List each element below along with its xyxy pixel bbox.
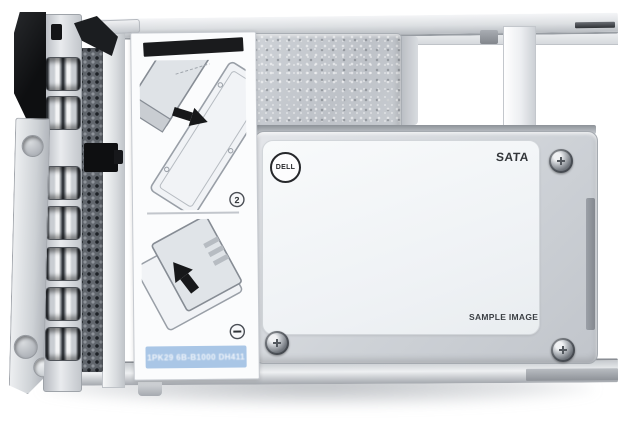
- latch-lock-tab-nub: [114, 150, 123, 164]
- spring-contact-slot: [45, 287, 81, 321]
- spring-contact-slot: [45, 327, 81, 361]
- carrier-foot: [138, 382, 162, 396]
- latch-black-wedge: [14, 12, 46, 128]
- spring-contact-slot: [45, 57, 81, 91]
- spring-contact-slot: [45, 166, 81, 200]
- spring-contact-slot: [45, 96, 81, 130]
- sata-interface-label: SATA: [496, 150, 530, 164]
- product-photo-dell-ssd-carrier: DELL SATA SAMPLE IMAGE: [0, 0, 618, 429]
- spring-contact-slot: [45, 247, 81, 281]
- part-number-text: 1PK29 6B-B1000 DH411: [147, 352, 245, 362]
- sample-image-watermark: SAMPLE IMAGE: [469, 312, 538, 322]
- screw-badge: [230, 324, 244, 338]
- bezel-side-rail: [102, 28, 125, 388]
- bracket-right-edge: [586, 198, 595, 330]
- step-badge: 2: [230, 192, 244, 206]
- bottom-rail-end-cap: [526, 368, 618, 381]
- svg-text:2: 2: [234, 195, 239, 205]
- label-divider: [147, 212, 239, 215]
- emi-perforated-strip: [79, 48, 103, 372]
- galvanized-metal-plate: [250, 33, 402, 130]
- rail-clip: [480, 30, 498, 44]
- screw-icon: [549, 149, 573, 173]
- screw-icon: [551, 338, 575, 362]
- instruction-label-card: 2 1PK29 6B-B1000 DH411: [130, 31, 260, 380]
- top-rail-dark-tip: [575, 22, 615, 28]
- release-handle: [9, 118, 51, 395]
- handle-hole: [21, 135, 44, 158]
- spring-contact-slot: [45, 206, 81, 240]
- bezel-indicator-window: [51, 24, 62, 40]
- dell-logo: DELL: [270, 152, 301, 183]
- remove-step-diagram: [141, 218, 248, 343]
- install-step-diagram: 2: [139, 59, 247, 210]
- screw-icon: [265, 331, 289, 355]
- ssd-label-face: [262, 140, 540, 335]
- handle-hole: [13, 335, 38, 360]
- part-number-banner: 1PK29 6B-B1000 DH411: [145, 345, 246, 368]
- label-header-bar: [143, 37, 244, 57]
- vertical-strut: [503, 26, 536, 136]
- latch-lock-tab: [84, 143, 118, 172]
